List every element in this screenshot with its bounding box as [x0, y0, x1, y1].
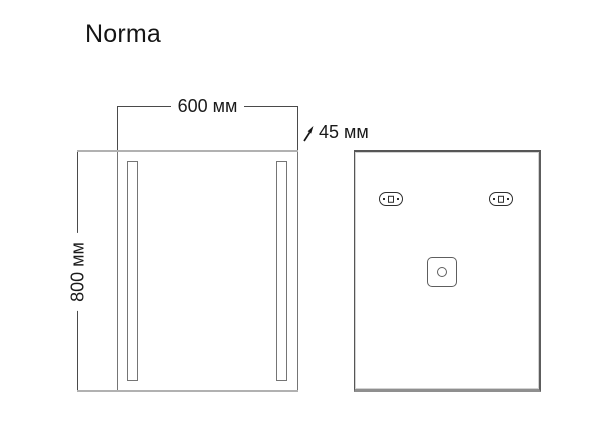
back-view-outline — [354, 150, 541, 392]
bottom-extension-line — [77, 390, 298, 392]
led-strip-right — [276, 161, 287, 381]
junction-box — [427, 257, 457, 287]
bracket-screw-dot-left — [493, 198, 495, 200]
depth-dimension-label: 45 мм — [319, 122, 369, 143]
technical-drawing-canvas: Norma 600 мм 800 мм 45 мм — [0, 0, 600, 435]
width-dimension-label-wrap: 600 мм — [117, 96, 298, 117]
depth-arrow-icon — [302, 124, 316, 143]
bracket-slot — [498, 196, 504, 203]
bracket-screw-dot-right — [507, 198, 509, 200]
junction-box-hole — [437, 267, 447, 277]
mounting-bracket-right — [489, 192, 513, 206]
height-dimension-label: 800 мм — [68, 233, 89, 311]
mounting-bracket-left — [379, 192, 403, 206]
top-extension-line — [77, 150, 298, 152]
bracket-slot — [388, 196, 394, 203]
depth-callout: 45 мм — [302, 122, 369, 143]
product-title: Norma — [85, 20, 161, 49]
front-view-mirror-outline — [117, 150, 298, 392]
bracket-screw-dot-left — [383, 198, 385, 200]
width-dimension-label: 600 мм — [171, 96, 245, 116]
led-strip-left — [127, 161, 138, 381]
bracket-screw-dot-right — [397, 198, 399, 200]
